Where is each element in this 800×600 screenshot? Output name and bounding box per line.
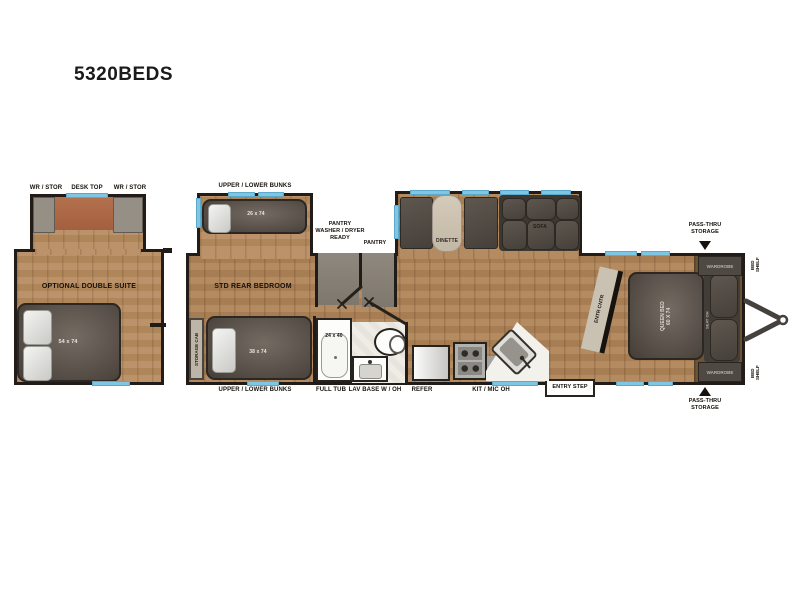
front-top-window-2 (641, 251, 670, 256)
label-bed-shelf-bottom: BED SHELF (747, 355, 763, 391)
toilet-seat (389, 335, 406, 354)
bunk-slide-opening (200, 253, 310, 259)
sofa-window-top1 (500, 190, 529, 195)
front-seat-cushion-2 (710, 319, 738, 361)
label-kit-mic: KIT / MIC OH (451, 387, 531, 395)
suite-desk (55, 197, 113, 230)
suite-wall-stub-mid (150, 323, 166, 327)
floorplan-page: 5320BEDS WR / STOR DESK TOP WR / STOR OP… (0, 0, 800, 600)
pass-thru-bottom-arrow-icon (699, 387, 711, 396)
label-queen-bed: QUEEN BED 60 X 74 (630, 274, 702, 358)
front-seat-cushion-1 (710, 274, 738, 318)
sofa-window-top2 (541, 190, 571, 195)
label-std-rear-bedroom: STD REAR BEDROOM (193, 282, 313, 291)
label-pass-thru-top: PASS-THRU STORAGE (665, 222, 745, 236)
front-top-window-1 (605, 251, 637, 256)
storage-cab: STORAGE CAB (189, 318, 204, 380)
suite-bottom-window (92, 381, 130, 386)
stove (453, 342, 487, 380)
label-wr-stor-right: WR / STOR (100, 185, 160, 193)
dinette-window-top1 (410, 190, 450, 195)
label-suite-bed-size: 54 x 74 (38, 339, 98, 346)
label-wardrobe-top: WARDROBE (707, 264, 734, 269)
label-storage-cab: STORAGE CAB (191, 320, 202, 378)
bath-wall-right (405, 322, 408, 383)
label-optional-double-suite: OPTIONAL DOUBLE SUITE (24, 282, 154, 291)
label-refer: REFER (392, 387, 452, 395)
wardrobe-bottom: WARDROBE (698, 362, 742, 382)
label-entry-step: ENTRY STEP (552, 384, 587, 391)
hitch-coupler-icon (779, 316, 787, 324)
page-title: 5320BEDS (74, 64, 173, 86)
suite-room-opening (35, 249, 141, 255)
label-wardrobe-bottom: WARDROBE (707, 370, 734, 375)
toilet (374, 328, 406, 356)
label-sofa: SOFA (515, 224, 565, 231)
label-pass-thru-bottom: PASS-THRU STORAGE (665, 398, 745, 412)
sofa-cushion-2 (526, 198, 556, 220)
refrigerator (412, 345, 450, 381)
pantry-wall-right (394, 253, 397, 307)
label-pantry: PANTRY (353, 240, 397, 247)
queen-bed: QUEEN BED 60 X 74 (628, 272, 704, 360)
kitchen-bottom-window (492, 381, 538, 386)
bunk-slide-window-top1 (228, 192, 255, 197)
full-tub (316, 318, 352, 382)
label-dinette: DINETTE (422, 238, 472, 245)
label-tub-size: 24 x 40 (317, 333, 351, 340)
label-bunk-slide: UPPER / LOWER BUNKS (185, 183, 325, 191)
pass-thru-top-arrow-icon (699, 241, 711, 250)
label-bunk-38-size: 38 x 74 (228, 349, 288, 356)
sofa-cushion-1 (502, 198, 526, 220)
suite-wall-stub-top (163, 248, 172, 253)
dinette-slide-opening (398, 253, 579, 259)
suite-wardrobe-right (113, 197, 143, 233)
entry-step: ENTRY STEP (545, 379, 595, 397)
lav-faucet (368, 360, 372, 364)
front-bottom-window-2 (648, 381, 673, 386)
sofa-cushion-3 (556, 198, 579, 220)
bedroom-bottom-window (247, 381, 279, 386)
bunk-bed-38 (206, 316, 312, 380)
lav-base-sink (352, 356, 388, 382)
suite-top-window (66, 193, 108, 198)
kitchen-counter (487, 356, 549, 382)
lav-basin (359, 364, 382, 379)
bunk-26-pillow (208, 204, 231, 233)
bunk-slide-window-left (196, 198, 201, 228)
pantry-cabinet-1 (318, 253, 359, 305)
suite-wardrobe-left (33, 197, 55, 233)
dinette-window-top2 (462, 190, 489, 195)
hitch (746, 301, 787, 339)
label-bunk-26-size: 26 x 74 (226, 211, 286, 218)
front-bottom-window-1 (616, 381, 644, 386)
label-bed-shelf-top: BED SHELF (747, 247, 763, 283)
stove-burners-top (458, 347, 482, 360)
wardrobe-top: WARDROBE (698, 256, 742, 276)
suite-bed-pillow-2 (23, 346, 52, 381)
stove-burners-bottom (458, 362, 482, 375)
dinette-window-left (394, 205, 399, 239)
bunk-slide-window-top2 (258, 192, 284, 197)
pantry-cabinet-2 (362, 253, 394, 307)
tub-drain (334, 356, 337, 359)
